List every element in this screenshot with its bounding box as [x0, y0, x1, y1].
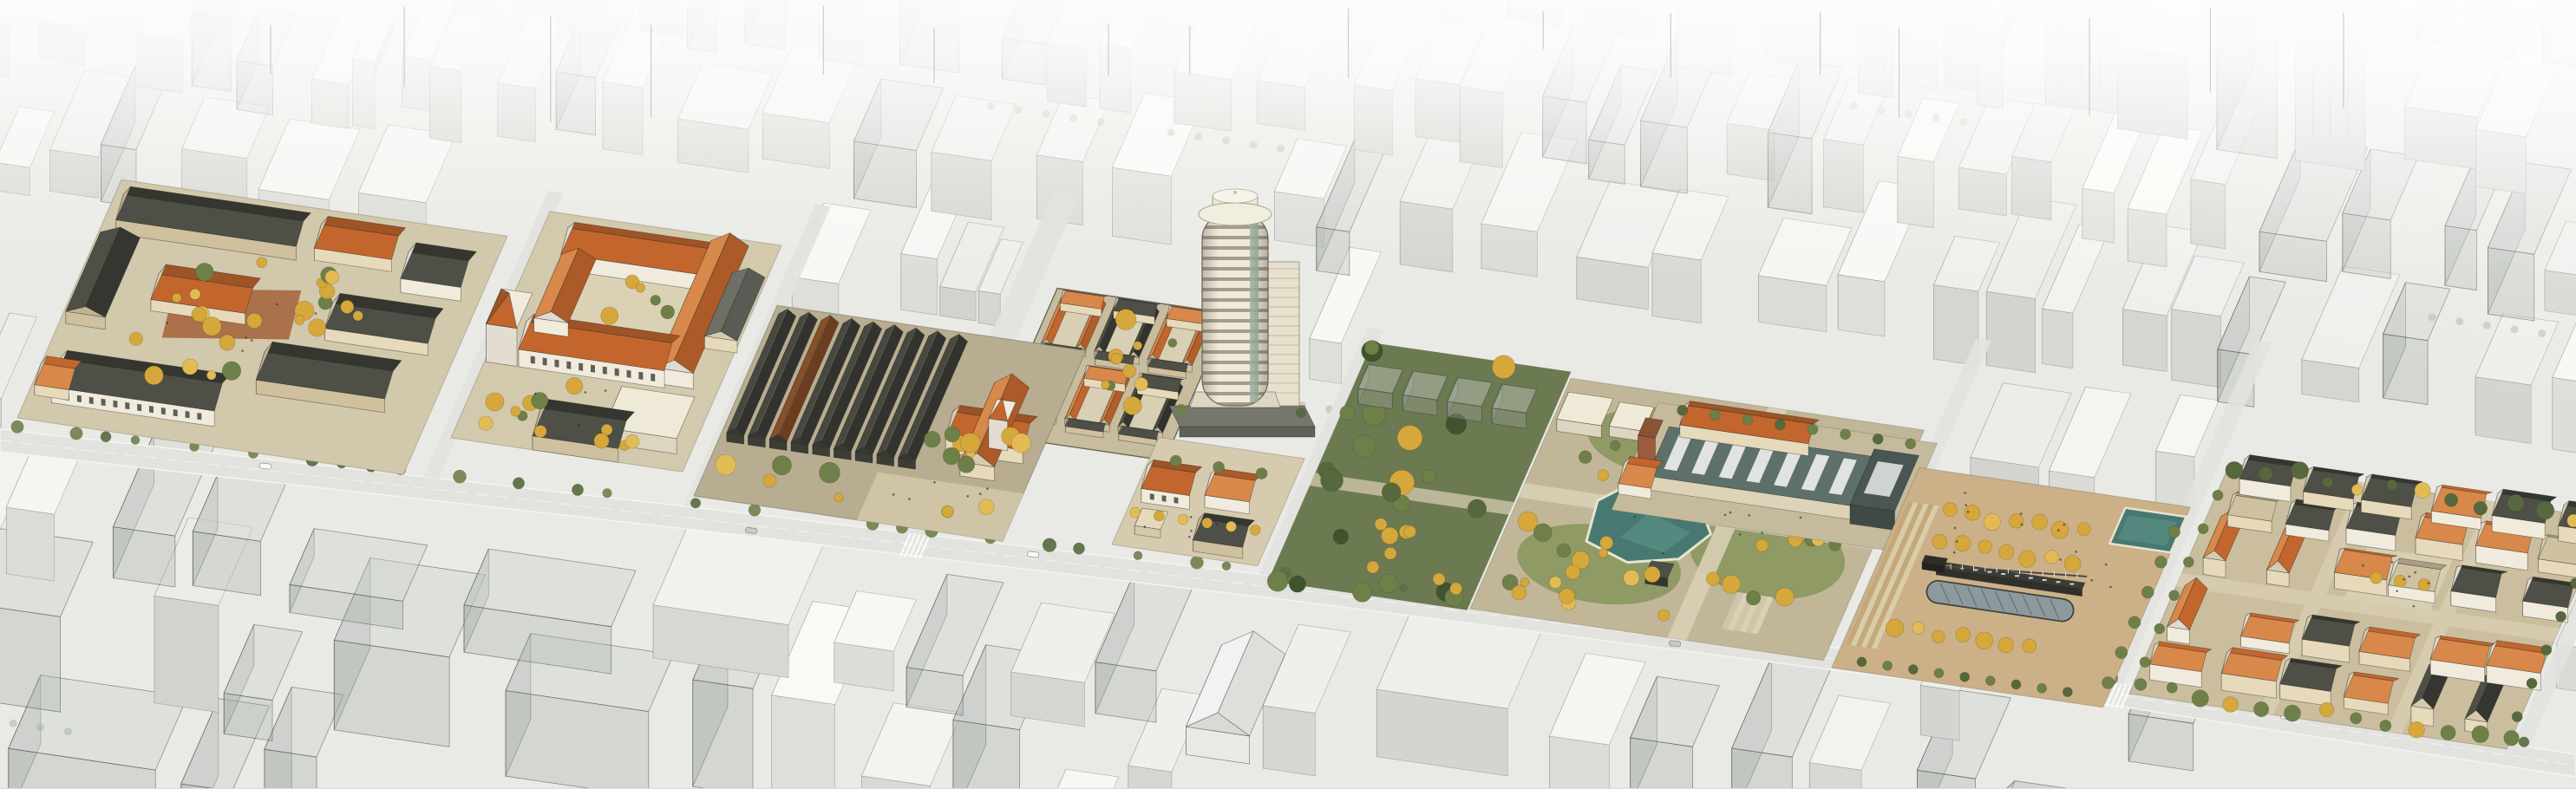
scene-svg	[0, 0, 2576, 788]
masterplan-aerial-rendering: Aerial axonometric rendering of an urban…	[0, 0, 2576, 788]
